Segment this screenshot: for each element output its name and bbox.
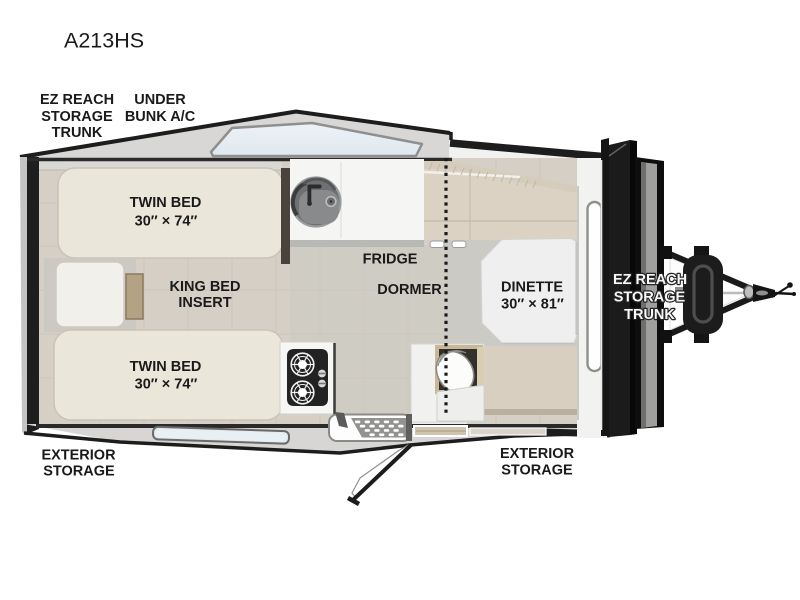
svg-text:STORAGE: STORAGE	[614, 290, 686, 306]
svg-text:UNDER: UNDER	[134, 92, 186, 108]
svg-text:30″ × 74″: 30″ × 74″	[135, 214, 198, 230]
svg-text:KING BED: KING BED	[170, 279, 241, 295]
svg-text:TWIN BED: TWIN BED	[130, 195, 202, 211]
svg-text:STORAGE: STORAGE	[41, 109, 113, 125]
svg-text:INSERT: INSERT	[178, 295, 231, 311]
svg-text:TRUNK: TRUNK	[52, 125, 103, 141]
svg-text:TWIN BED: TWIN BED	[130, 359, 202, 375]
svg-text:A213HS: A213HS	[64, 29, 144, 53]
svg-text:EZ REACH: EZ REACH	[40, 92, 114, 108]
svg-text:FRIDGE: FRIDGE	[363, 252, 418, 268]
svg-text:BUNK A/C: BUNK A/C	[125, 109, 196, 125]
svg-text:STORAGE: STORAGE	[43, 464, 115, 480]
svg-text:DORMER: DORMER	[377, 282, 442, 298]
svg-text:STORAGE: STORAGE	[501, 463, 573, 479]
svg-text:30″ × 81″: 30″ × 81″	[501, 297, 564, 313]
svg-text:30″ × 74″: 30″ × 74″	[135, 377, 198, 393]
svg-text:EXTERIOR: EXTERIOR	[500, 446, 575, 462]
svg-text:TRUNK: TRUNK	[624, 307, 675, 323]
svg-text:EXTERIOR: EXTERIOR	[41, 448, 116, 464]
svg-text:EZ REACH: EZ REACH	[613, 272, 687, 288]
svg-text:DINETTE: DINETTE	[501, 280, 563, 296]
